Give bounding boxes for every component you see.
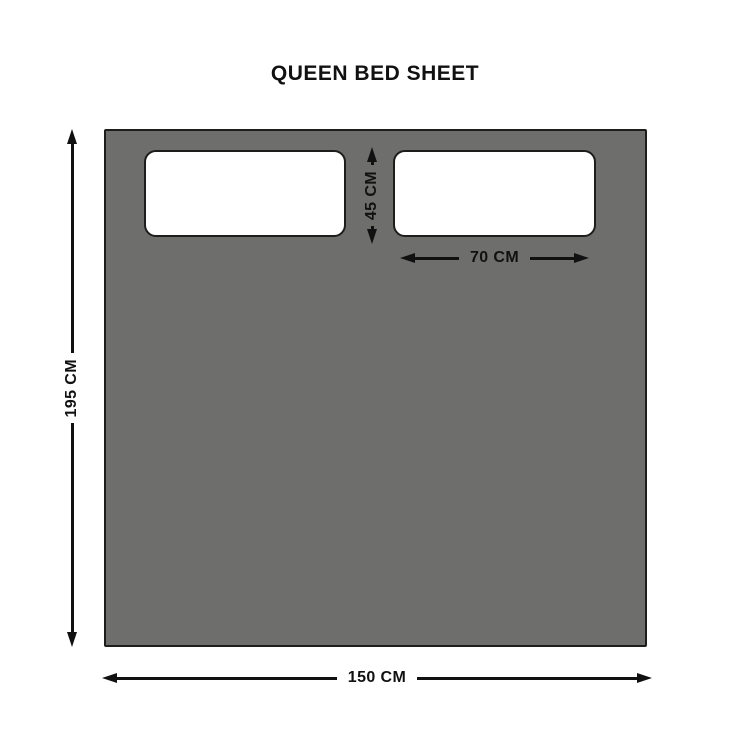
pillow-width-dimension: 70 CM bbox=[400, 246, 589, 270]
arrow-right-icon bbox=[574, 253, 589, 263]
pillow-width-label: 70 CM bbox=[470, 249, 519, 267]
arrow-up-icon bbox=[367, 147, 377, 162]
arrow-left-icon bbox=[102, 673, 117, 683]
dimension-line bbox=[530, 257, 574, 260]
pillow-height-dimension: 45 CM bbox=[350, 147, 394, 244]
sheet-width-dimension: 150 CM bbox=[102, 666, 652, 690]
dimension-line bbox=[71, 423, 74, 632]
dimension-line bbox=[417, 677, 637, 680]
diagram-title: QUEEN BED SHEET bbox=[0, 62, 750, 86]
arrow-down-icon bbox=[67, 632, 77, 647]
dimension-line bbox=[117, 677, 337, 680]
right-pillow bbox=[393, 150, 596, 237]
diagram-canvas: QUEEN BED SHEET 195 CM 45 CM 70 CM 150 C… bbox=[0, 0, 750, 750]
dimension-line bbox=[371, 162, 374, 165]
arrow-down-icon bbox=[367, 229, 377, 244]
pillow-height-label: 45 CM bbox=[363, 171, 381, 220]
sheet-height-dimension: 195 CM bbox=[50, 129, 94, 647]
dimension-line bbox=[415, 257, 459, 260]
dimension-line bbox=[71, 144, 74, 353]
arrow-up-icon bbox=[67, 129, 77, 144]
arrow-right-icon bbox=[637, 673, 652, 683]
sheet-height-label: 195 CM bbox=[63, 359, 81, 417]
arrow-left-icon bbox=[400, 253, 415, 263]
left-pillow bbox=[144, 150, 346, 237]
sheet-width-label: 150 CM bbox=[348, 669, 406, 687]
